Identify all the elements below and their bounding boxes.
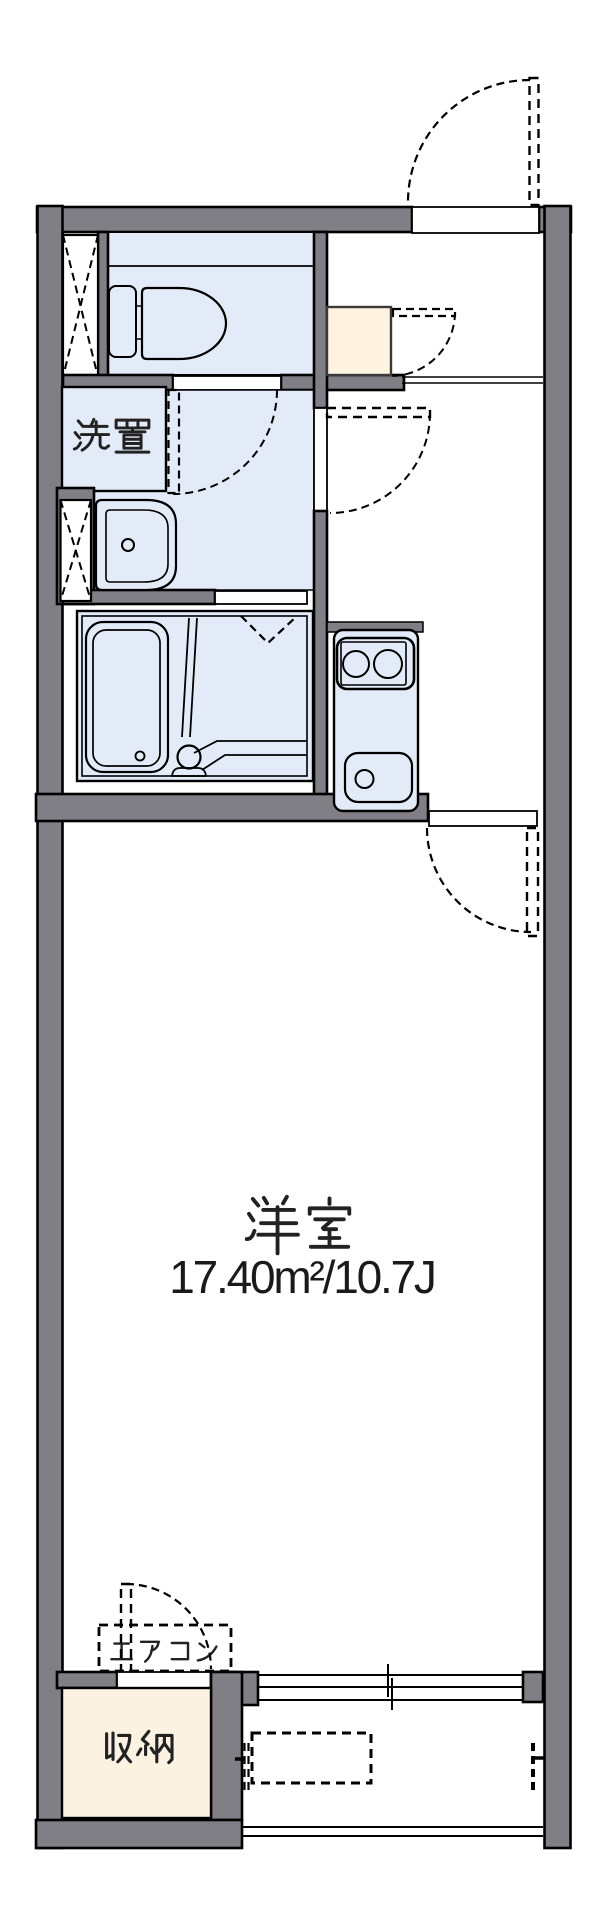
svg-text:17.40m²/10.7J: 17.40m²/10.7J: [169, 1251, 434, 1303]
